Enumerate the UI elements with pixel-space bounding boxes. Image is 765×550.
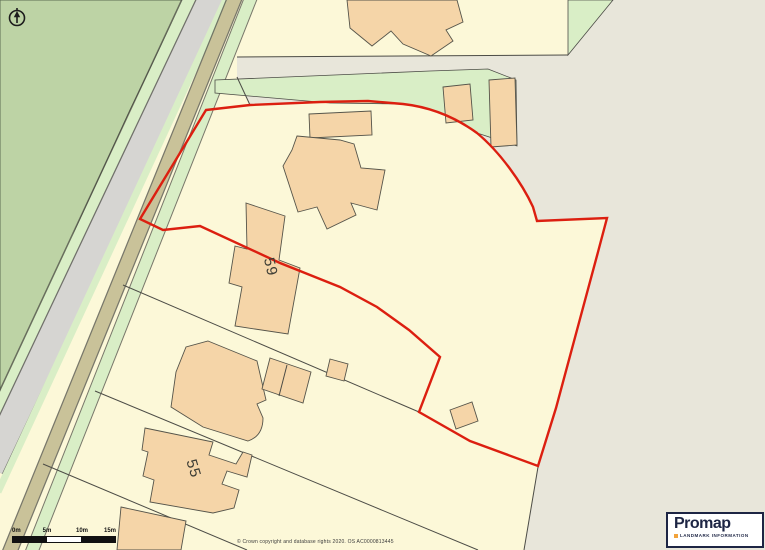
landmark-dot-icon	[674, 534, 678, 538]
scale-tick-15: 15m	[104, 528, 116, 534]
garage-block	[309, 111, 372, 138]
promap-logo: Promap LANDMARK INFORMATION	[666, 512, 764, 548]
promap-logo-name: Promap	[674, 515, 762, 532]
promap-map-window: 59 55 0m 5m 10m 15m © Crown copyright an…	[0, 0, 765, 550]
scale-bar-segments	[12, 536, 116, 543]
copyright-text: © Crown copyright and database rights 20…	[237, 539, 394, 545]
scale-tick-0: 0m	[12, 528, 21, 534]
scale-tick-5: 5m	[43, 528, 52, 534]
promap-logo-tagline: LANDMARK INFORMATION	[680, 533, 749, 538]
scale-bar-labels: 0m 5m 10m 15m	[12, 528, 116, 535]
map-canvas[interactable]: 59 55	[0, 0, 765, 550]
scale-bar: 0m 5m 10m 15m	[12, 528, 116, 543]
outbuilding-top-b	[489, 78, 517, 147]
scale-tick-10: 10m	[76, 528, 88, 534]
